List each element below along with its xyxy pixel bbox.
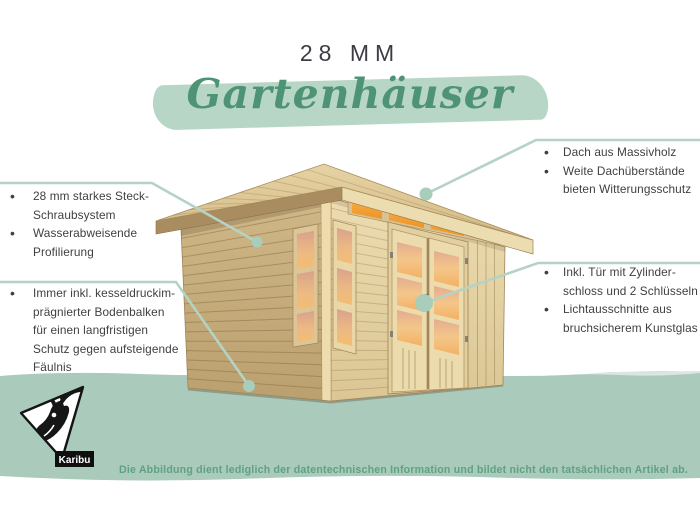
disclaimer-text: Die Abbildung dient lediglich der datent… [119,464,688,476]
callout-text: Immer inkl. kesseldruckim- [33,286,175,300]
callout-text: bruchsicherem Kunstglas [563,321,698,335]
callout-text: Inkl. Tür mit Zylinder- [563,265,676,279]
brush-highlight: Gartenhäuser [157,70,544,125]
header: 28 MM [0,40,700,67]
callout-item: Dach aus Massivholz [536,143,700,162]
callout-item: Weite Dachüberstände [536,162,700,181]
title-wrap: Gartenhäuser [0,70,700,125]
callout-item: Schraubsystem [6,206,186,225]
callout-item: schloss und 2 Schlüsseln [536,282,700,301]
callout-item: bieten Witterungsschutz [536,180,700,199]
front-wall-window [333,220,356,354]
callout-item: Immer inkl. kesseldruckim- [6,284,206,303]
callout-item: Schutz gegen aufsteigende [6,340,206,359]
page: Karibu 28 MM Gartenhäuser 28 mm starkes … [0,0,700,525]
callout-dot-base [243,380,255,392]
callout-right-top: Dach aus Massivholz Weite Dachüberstände… [536,143,700,199]
callout-text: Schutz gegen aufsteigende [33,342,179,356]
callout-dot-wall [252,237,263,248]
callout-text: für einen langfristigen [33,323,148,337]
callout-text: Fäulnis [33,360,72,374]
callout-text: 28 mm starkes Steck- [33,189,149,203]
callout-text: bieten Witterungsschutz [563,182,691,196]
callout-left-bottom: Immer inkl. kesseldruckim- prägnierter B… [6,284,206,377]
callout-text: Wasserabweisende [33,226,137,240]
brand-label: Karibu [59,455,91,466]
callout-item: 28 mm starkes Steck- [6,187,186,206]
callout-text: Schraubsystem [33,208,116,222]
callout-text: Dach aus Massivholz [563,145,676,159]
callout-left-top: 28 mm starkes Steck- Schraubsystem Wasse… [6,187,186,261]
size-label: 28 MM [300,40,400,66]
callout-text: Profilierung [33,245,94,259]
callout-item: Lichtausschnitte aus [536,300,700,319]
callout-dot-roof [420,188,433,201]
left-wall-window [293,224,318,347]
callout-text: Weite Dachüberstände [563,164,685,178]
callout-item: prägnierter Bodenbalken [6,303,206,322]
callout-text: prägnierter Bodenbalken [33,305,165,319]
callout-item: Profilierung [6,243,186,262]
corner-post [321,199,331,401]
garden-house-illustration [156,164,533,402]
callout-item: Wasserabweisende [6,224,186,243]
callout-item: Fäulnis [6,358,206,377]
callout-text: schloss und 2 Schlüsseln [563,284,698,298]
callout-right-middle: Inkl. Tür mit Zylinder- schloss und 2 Sc… [536,263,700,337]
callout-text: Lichtausschnitte aus [563,302,672,316]
callout-item: Inkl. Tür mit Zylinder- [536,263,700,282]
page-title: Gartenhäuser [187,70,514,118]
callout-dot-door [415,294,433,312]
callout-item: bruchsicherem Kunstglas [536,319,700,338]
callout-item: für einen langfristigen [6,321,206,340]
